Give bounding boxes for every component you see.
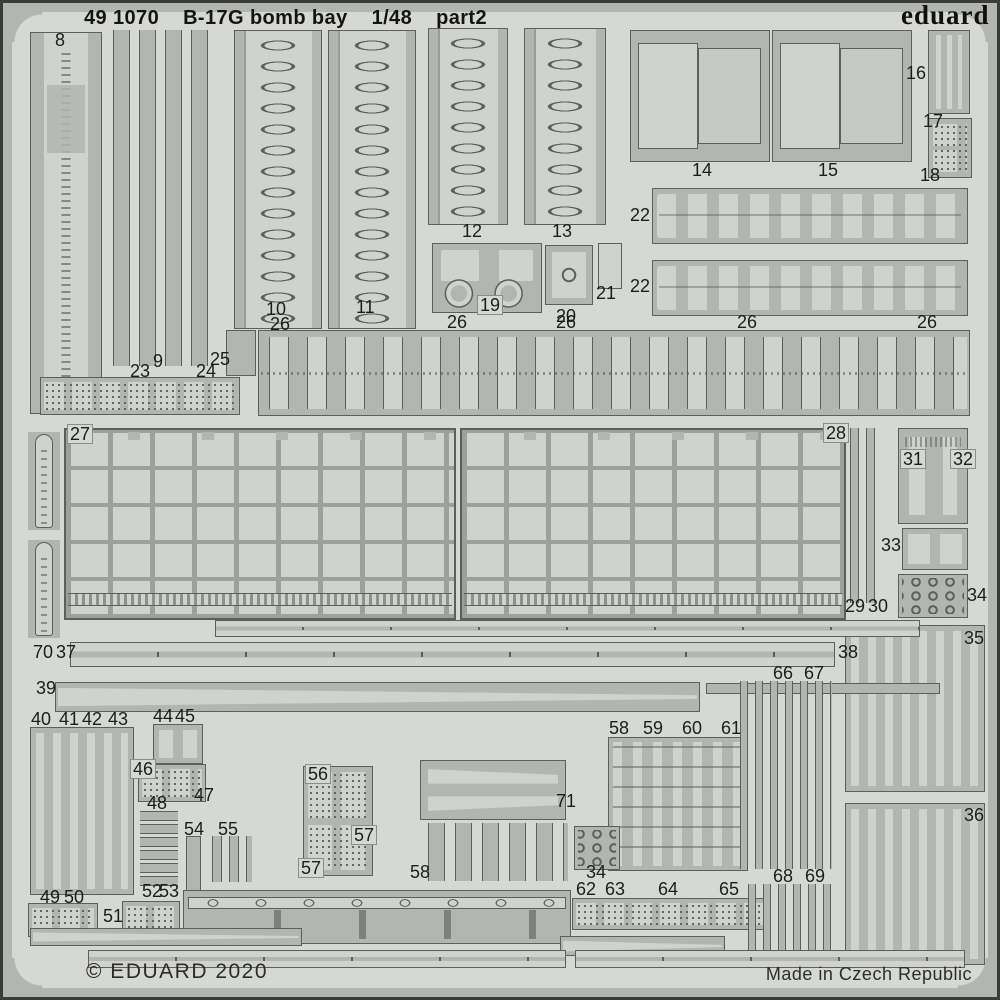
part-44-45	[153, 724, 203, 764]
part-taper-bl	[30, 928, 302, 946]
part-14	[630, 30, 770, 162]
part-label-31: 31	[901, 450, 925, 468]
part-48	[140, 810, 178, 886]
part-label-12: 12	[462, 222, 482, 240]
part-label-68: 68	[773, 867, 793, 885]
part-13	[524, 28, 606, 225]
part-label-59: 59	[643, 719, 663, 737]
part-label-36: 36	[964, 806, 984, 824]
part-label-33: 33	[881, 536, 901, 554]
part-33	[902, 528, 968, 570]
part-70	[28, 540, 60, 638]
part-label-18: 18	[920, 166, 940, 184]
part-label-37: 37	[56, 643, 76, 661]
part-label-14: 14	[692, 161, 712, 179]
eduard-logo: eduard	[901, 0, 990, 31]
part-label-56: 56	[306, 765, 330, 783]
part-label-16: 16	[906, 64, 926, 82]
part-label-26: 26	[447, 313, 467, 331]
part-12	[428, 28, 508, 225]
part-26-row	[258, 330, 970, 416]
part-27	[64, 428, 456, 620]
part-label-57: 57	[299, 859, 323, 877]
part-10	[234, 30, 322, 329]
part-36	[845, 803, 985, 965]
part-label-34: 34	[967, 586, 987, 604]
part-label-50: 50	[64, 888, 84, 906]
part-label-49: 49	[40, 888, 60, 906]
part-label-26: 26	[737, 313, 757, 331]
part-label-15: 15	[818, 161, 838, 179]
part-label-35: 35	[964, 629, 984, 647]
part-37-38	[70, 642, 835, 667]
part-label-26: 26	[917, 313, 937, 331]
part-label-22: 22	[630, 206, 650, 224]
part-label-38: 38	[838, 643, 858, 661]
copyright-text: © EDUARD 2020	[86, 960, 268, 984]
part-label-51: 51	[103, 907, 123, 925]
part-label-66: 66	[773, 664, 793, 682]
part-25	[226, 330, 256, 376]
part-label-70: 70	[33, 643, 53, 661]
part-20	[546, 246, 592, 304]
sheet-title: B-17G bomb bay	[183, 7, 348, 29]
part-label-28: 28	[824, 424, 848, 442]
part-label-65: 65	[719, 880, 739, 898]
sheet-part-number: part2	[436, 7, 487, 29]
part-28	[460, 428, 846, 620]
part-label-55: 55	[218, 820, 238, 838]
part-label-64: 64	[658, 880, 678, 898]
part-label-39: 39	[36, 679, 56, 697]
part-label-67: 67	[804, 664, 824, 682]
part-label-71: 71	[556, 792, 576, 810]
part-9	[113, 30, 215, 366]
part-label-32: 32	[951, 450, 975, 468]
photoetch-sheet: 49 1070 B-17G bomb bay 1/48 part2 eduard…	[0, 0, 1000, 1000]
part-label-53: 53	[159, 882, 179, 900]
part-label-26: 26	[556, 313, 576, 331]
part-label-22: 22	[630, 277, 650, 295]
part-62-65	[572, 898, 768, 930]
part-label-61: 61	[721, 719, 741, 737]
part-40-43	[30, 727, 134, 895]
part-label-58: 58	[609, 719, 629, 737]
part-label-17: 17	[923, 112, 943, 130]
part-label-45: 45	[175, 707, 195, 725]
part-label-62: 62	[576, 880, 596, 898]
part-39	[55, 682, 700, 712]
made-in-text: Made in Czech Republic	[766, 964, 972, 985]
part-58-61	[608, 737, 748, 871]
part-rail-a	[215, 620, 920, 637]
part-label-60: 60	[682, 719, 702, 737]
part-label-58: 58	[410, 863, 430, 881]
part-label-27: 27	[68, 425, 92, 443]
part-34a	[898, 574, 968, 618]
part-label-11: 11	[356, 298, 375, 316]
part-label-47: 47	[194, 786, 214, 804]
part-label-69: 69	[805, 867, 825, 885]
part-label-57: 57	[352, 826, 376, 844]
part-label-9: 9	[153, 352, 163, 370]
part-31-32	[898, 428, 968, 524]
part-label-13: 13	[552, 222, 572, 240]
part-strap-a	[28, 432, 60, 530]
catalog-number: 49 1070	[84, 7, 159, 29]
part-66-67	[740, 681, 832, 869]
part-11	[328, 30, 416, 329]
part-label-21: 21	[596, 284, 616, 302]
part-label-30: 30	[868, 597, 888, 615]
part-label-48: 48	[147, 794, 167, 812]
part-label-63: 63	[605, 880, 625, 898]
part-label-23: 23	[130, 362, 150, 380]
part-22b	[652, 260, 968, 316]
part-22a	[652, 188, 968, 244]
part-35	[845, 625, 985, 792]
part-label-41: 41	[59, 710, 79, 728]
part-label-46: 46	[131, 760, 155, 778]
sheet-scale: 1/48	[372, 7, 413, 29]
part-15	[772, 30, 912, 162]
part-label-43: 43	[108, 710, 128, 728]
part-label-40: 40	[31, 710, 51, 728]
part-58b	[428, 823, 568, 881]
part-71	[420, 760, 566, 820]
part-55	[212, 836, 252, 882]
part-label-8: 8	[55, 31, 65, 49]
part-16	[928, 30, 970, 114]
part-29-30	[850, 428, 882, 603]
frame-corner-bottom-left	[12, 958, 42, 988]
part-label-26: 26	[270, 315, 290, 333]
part-label-25: 25	[210, 350, 230, 368]
part-label-42: 42	[82, 710, 102, 728]
part-8	[30, 32, 102, 414]
sheet-header: 49 1070 B-17G bomb bay 1/48 part2	[84, 7, 487, 30]
part-23-24	[40, 377, 240, 415]
part-label-54: 54	[184, 820, 204, 838]
part-label-44: 44	[153, 707, 173, 725]
part-label-19: 19	[478, 296, 502, 314]
part-label-29: 29	[845, 597, 865, 615]
